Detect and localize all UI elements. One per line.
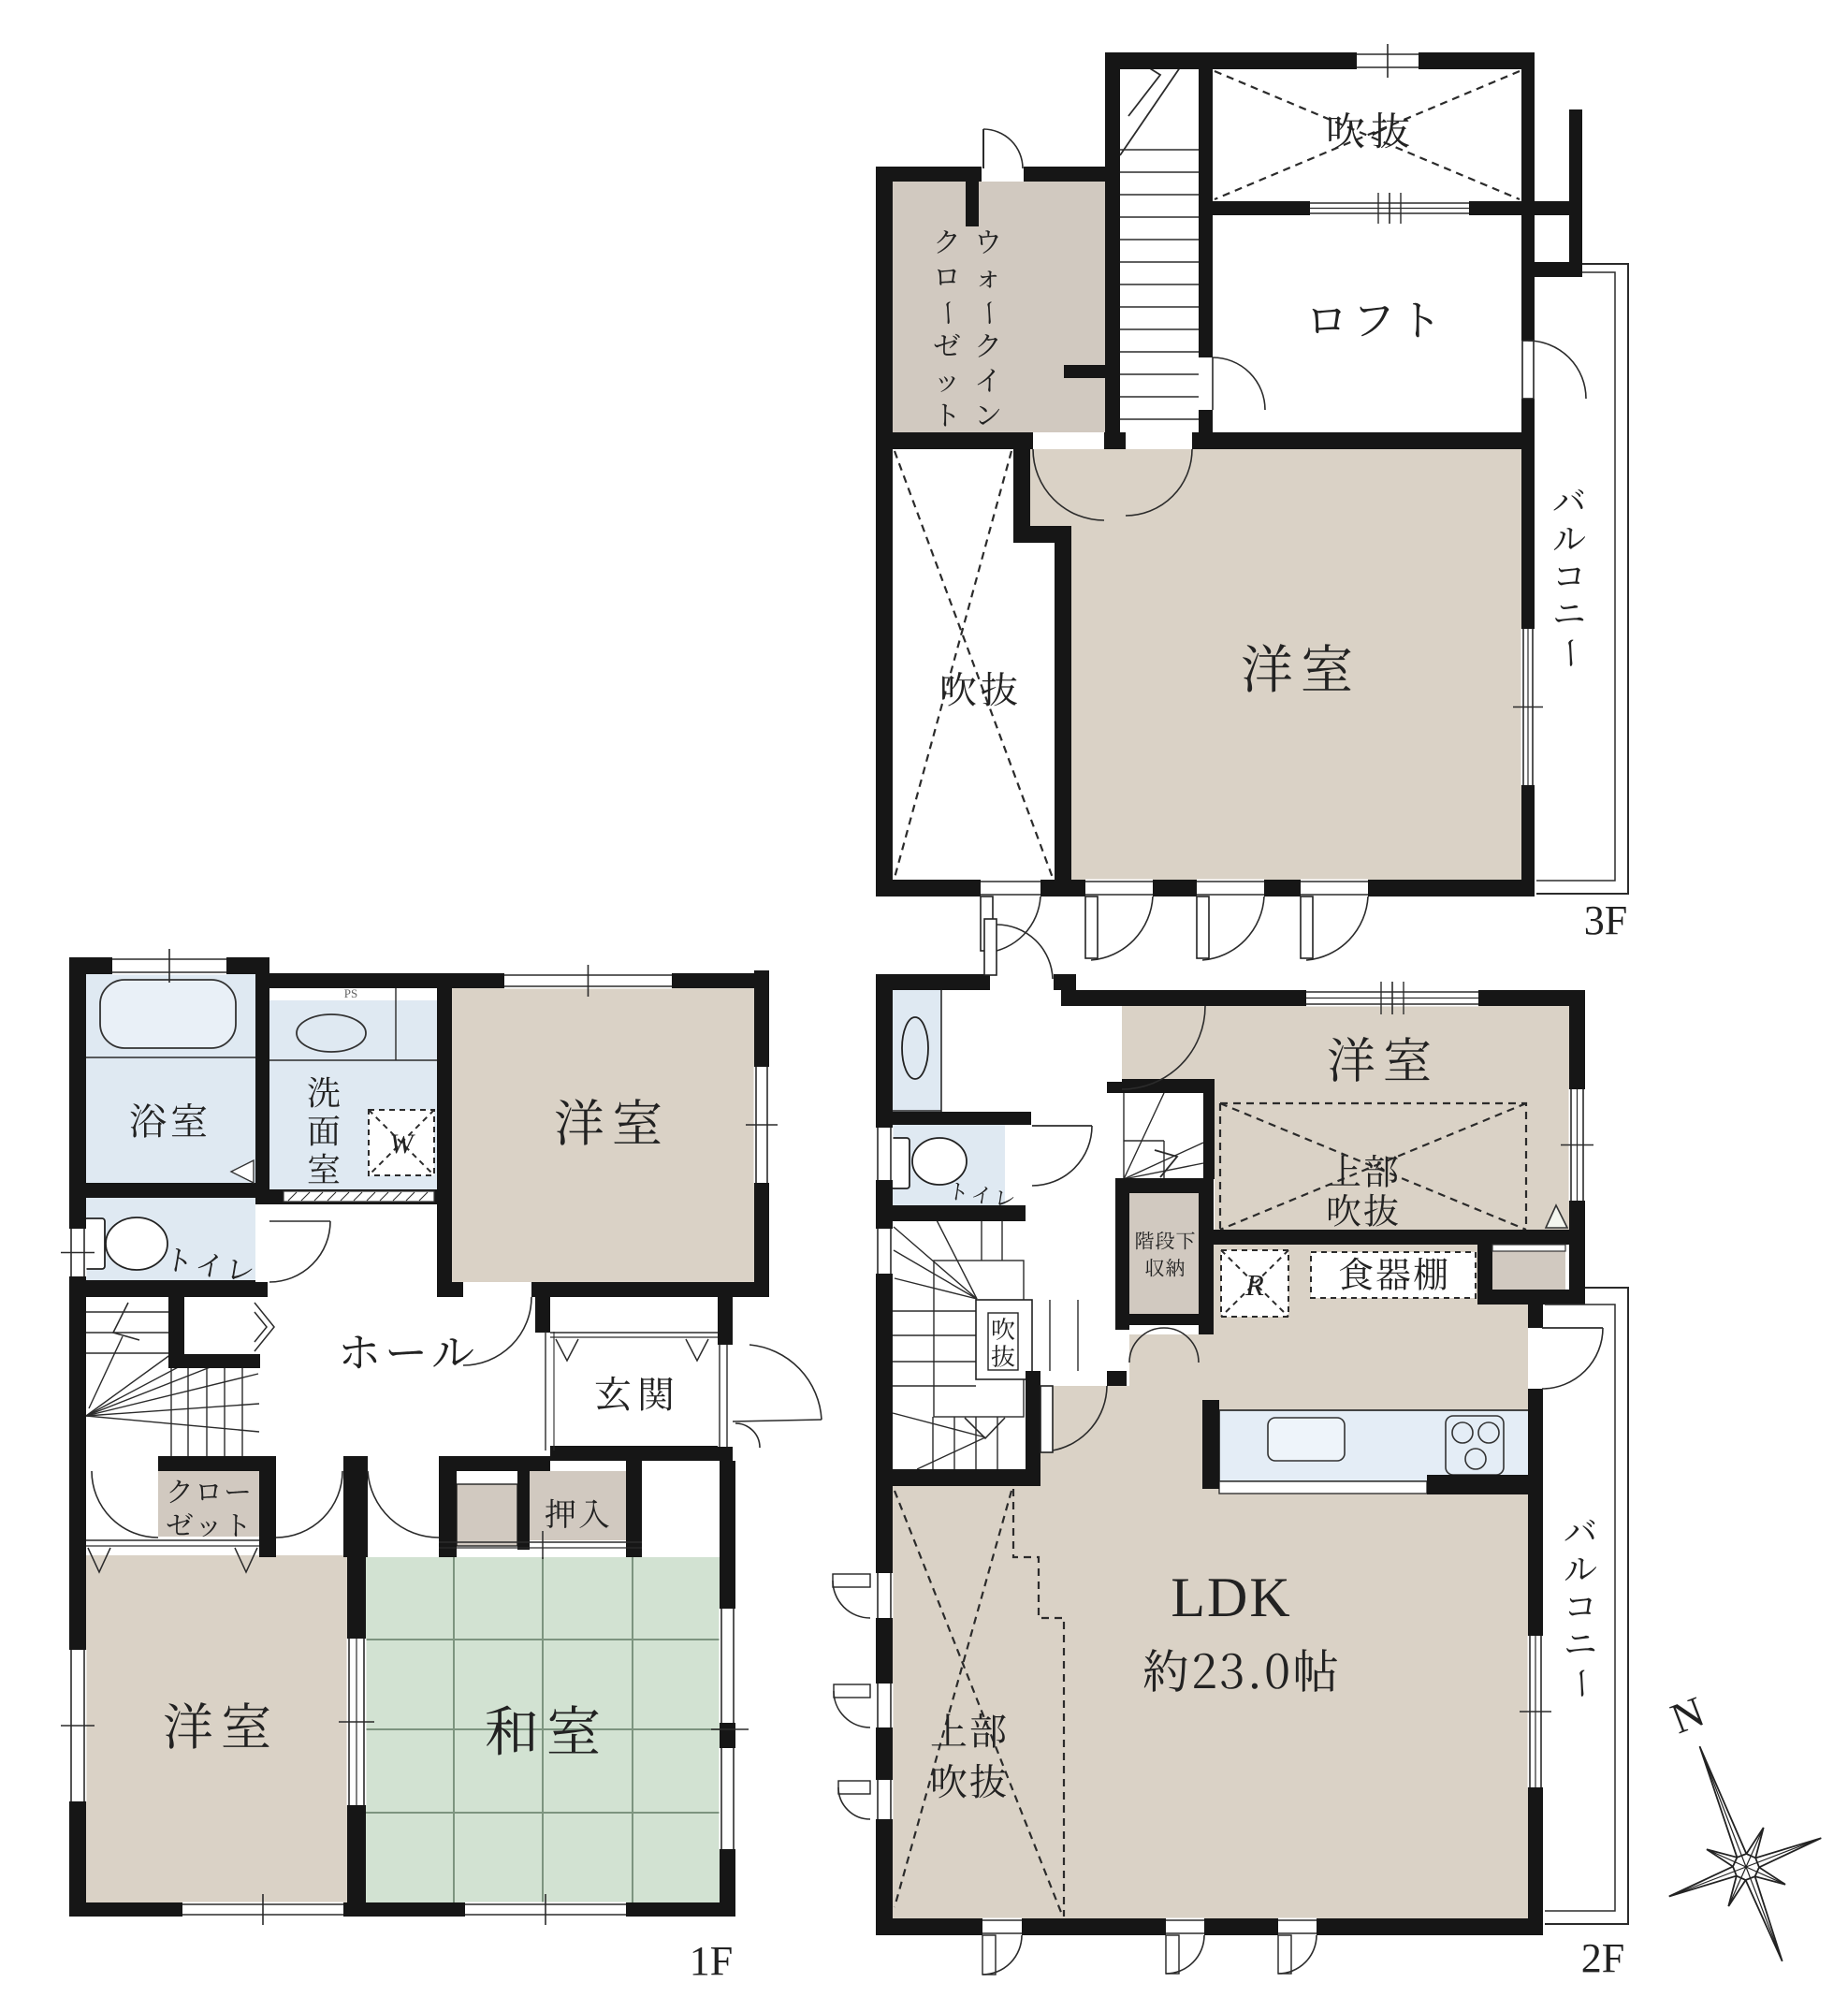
svg-text:3F: 3F	[1584, 897, 1627, 943]
svg-text:1F: 1F	[690, 1938, 733, 1984]
svg-text:W: W	[390, 1129, 416, 1159]
svg-text:R: R	[1244, 1268, 1264, 1302]
svg-text:PS: PS	[344, 986, 357, 1000]
svg-text:2F: 2F	[1581, 1935, 1624, 1981]
svg-text:LDK: LDK	[1171, 1567, 1291, 1628]
